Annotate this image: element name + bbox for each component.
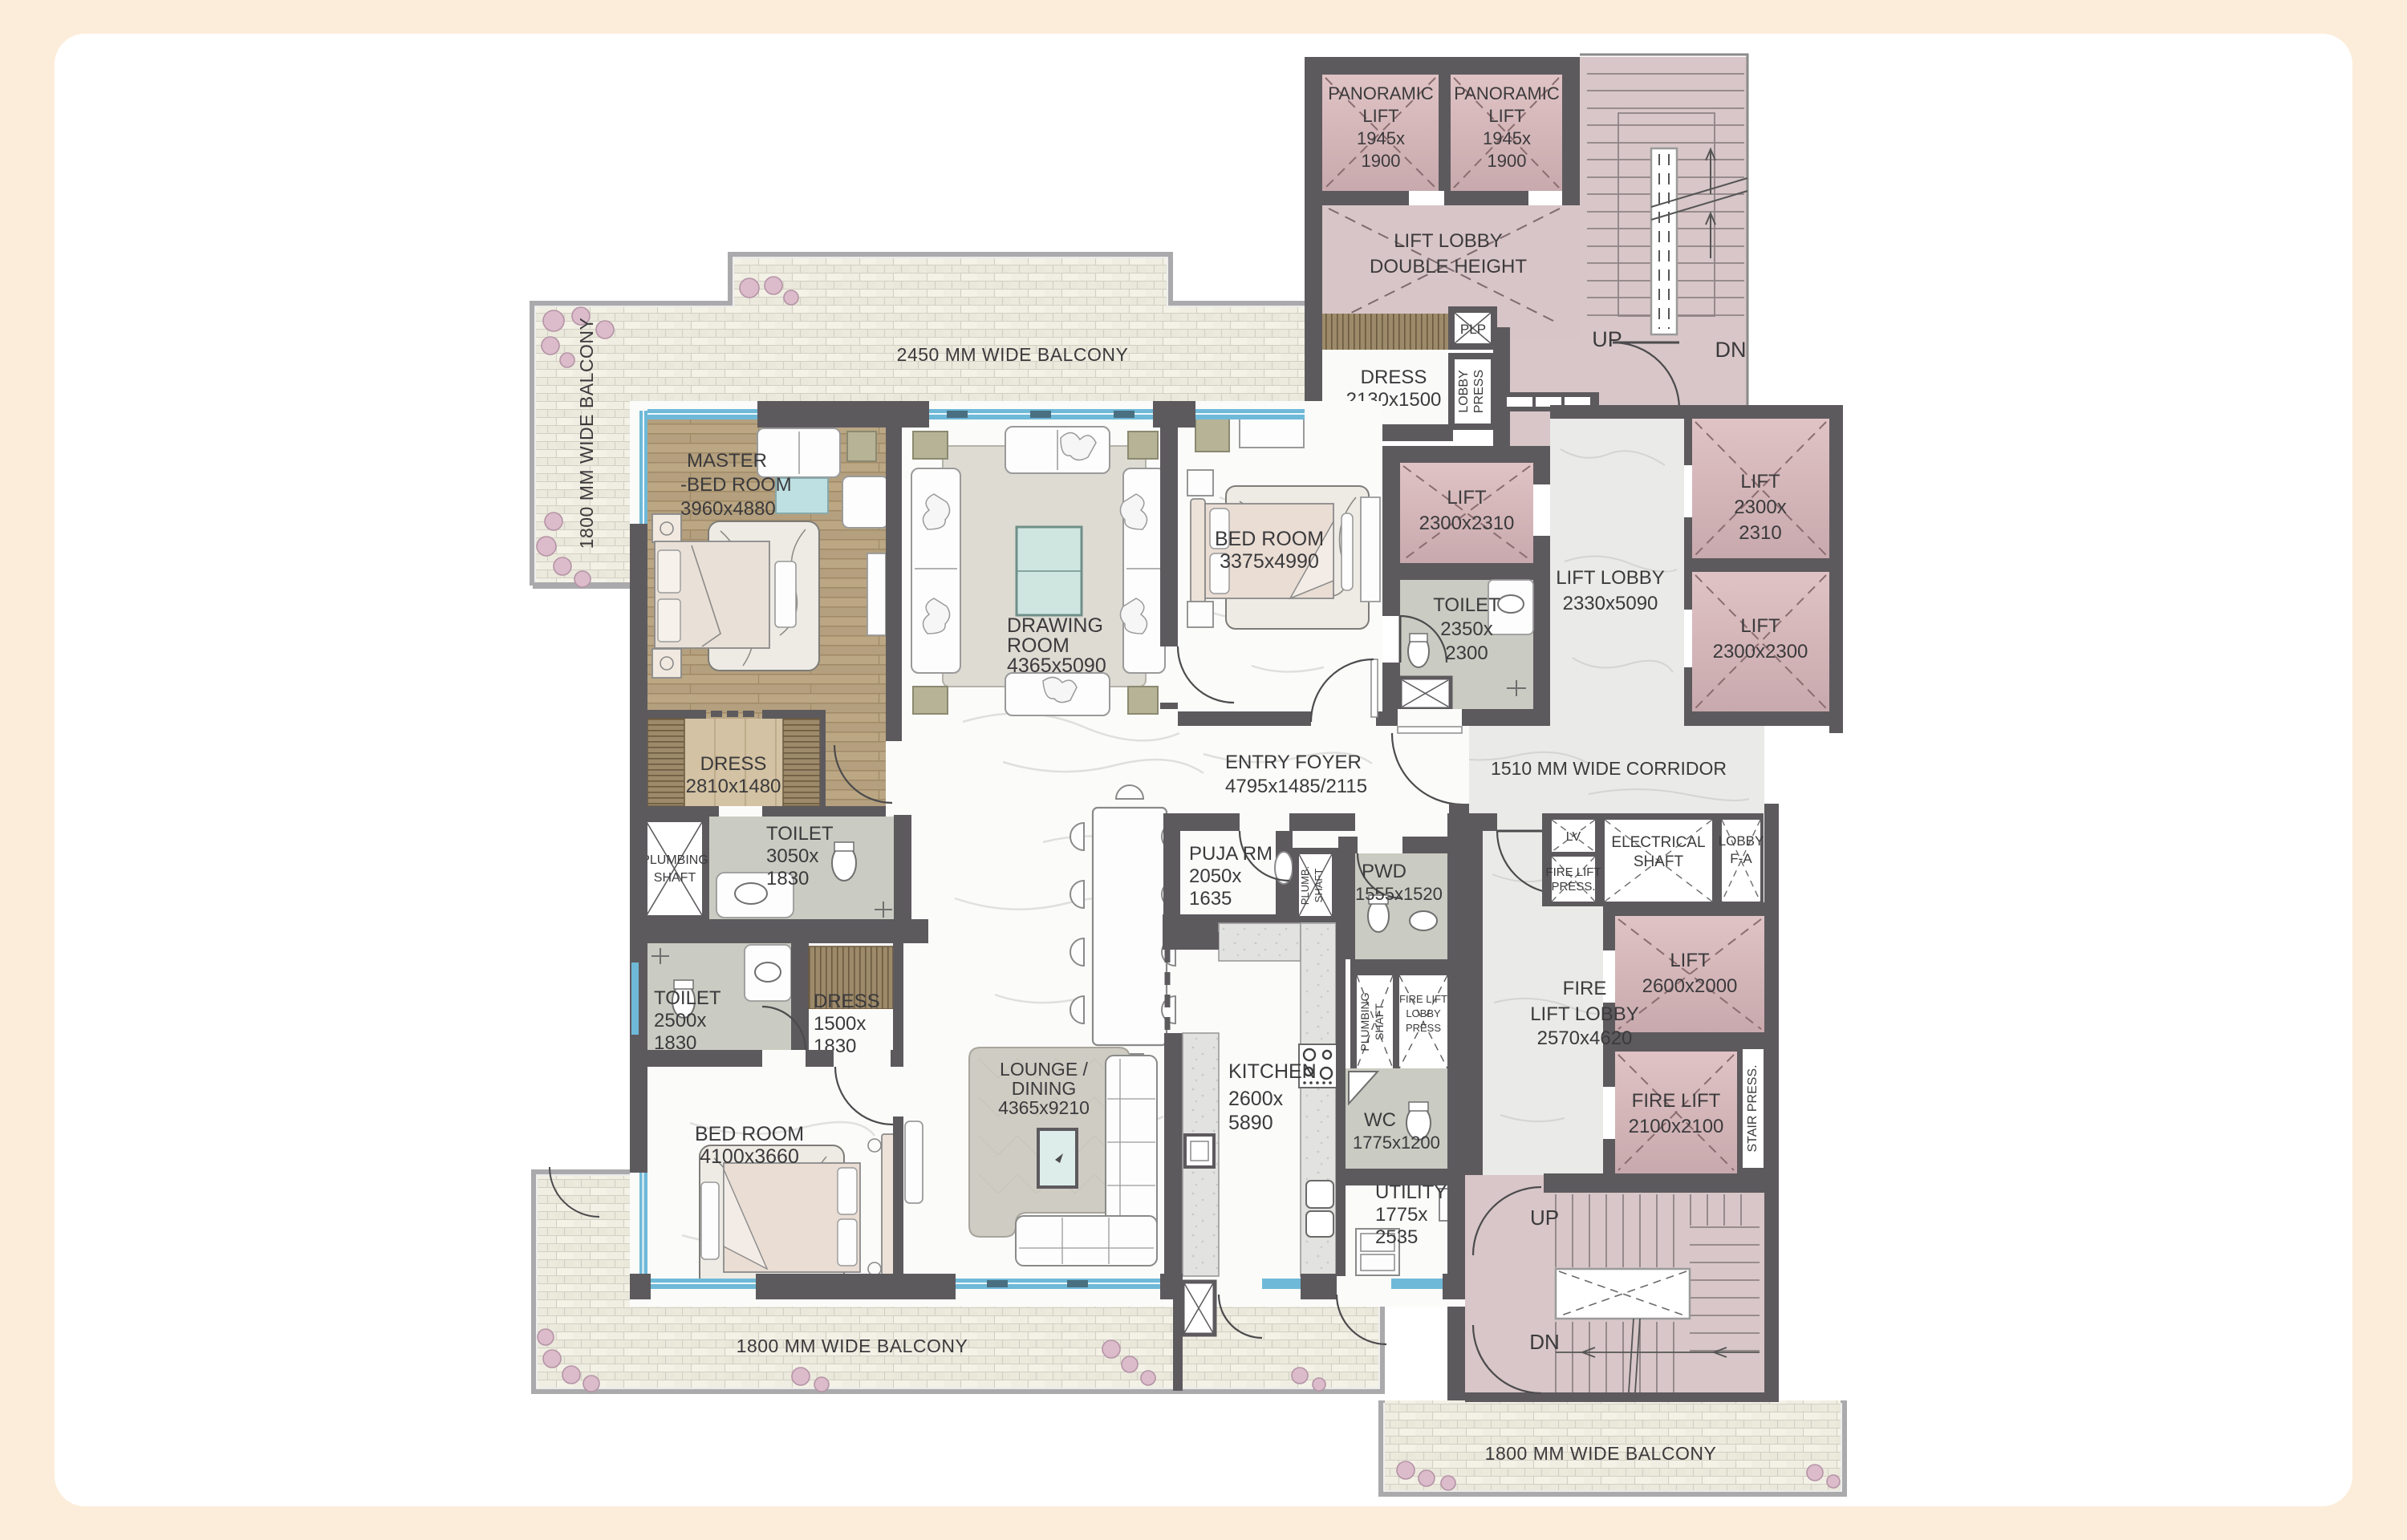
svg-text:4795x1485/2115: 4795x1485/2115 <box>1225 776 1367 797</box>
svg-text:LOUNGE /: LOUNGE / <box>1000 1059 1089 1080</box>
svg-text:PRESS: PRESS <box>1406 1022 1441 1034</box>
svg-text:2300x: 2300x <box>1734 496 1786 518</box>
svg-text:-BED ROOM: -BED ROOM <box>680 474 792 496</box>
svg-text:4100x3660: 4100x3660 <box>700 1145 799 1168</box>
svg-text:FIRE LIFT: FIRE LIFT <box>1545 865 1601 879</box>
svg-text:ROOM: ROOM <box>1007 634 1070 657</box>
svg-text:DRAWING: DRAWING <box>1007 614 1103 637</box>
svg-text:SHAFT: SHAFT <box>1373 1003 1386 1040</box>
svg-text:LOBBY: LOBBY <box>1457 370 1471 413</box>
svg-text:F-A: F-A <box>1730 851 1752 866</box>
svg-text:2310: 2310 <box>1739 522 1781 544</box>
svg-text:1900: 1900 <box>1488 151 1527 171</box>
svg-text:2100x2100: 2100x2100 <box>1629 1116 1724 1137</box>
svg-text:STAIR PRESS.: STAIR PRESS. <box>1746 1064 1760 1152</box>
svg-text:PRESS.: PRESS. <box>1551 880 1595 894</box>
svg-text:2300x2300: 2300x2300 <box>1713 641 1808 663</box>
svg-text:2600x: 2600x <box>1228 1088 1284 1110</box>
svg-text:4365x5090: 4365x5090 <box>1007 654 1106 677</box>
svg-text:LIFT: LIFT <box>1362 106 1398 126</box>
svg-text:DN: DN <box>1529 1330 1560 1354</box>
svg-text:2300: 2300 <box>1445 642 1488 664</box>
svg-text:DRESS: DRESS <box>1361 367 1427 388</box>
svg-text:LIFT: LIFT <box>1740 615 1780 637</box>
svg-text:PANORAMIC: PANORAMIC <box>1328 83 1434 103</box>
svg-text:LOBBY: LOBBY <box>1719 833 1764 849</box>
svg-text:TOILET: TOILET <box>766 823 834 845</box>
svg-text:SHAFT: SHAFT <box>1634 853 1684 870</box>
svg-text:2535: 2535 <box>1375 1226 1418 1248</box>
svg-text:1775x: 1775x <box>1375 1204 1427 1226</box>
svg-text:ELECTRICAL: ELECTRICAL <box>1611 834 1705 851</box>
svg-text:2810x1480: 2810x1480 <box>686 776 781 797</box>
svg-text:1635: 1635 <box>1189 888 1232 910</box>
svg-text:DINING: DINING <box>1012 1078 1077 1099</box>
svg-text:LIFT: LIFT <box>1447 487 1487 509</box>
svg-text:PRESS: PRESS <box>1472 370 1486 413</box>
svg-text:1945x: 1945x <box>1483 128 1531 148</box>
svg-text:WC: WC <box>1364 1109 1396 1131</box>
svg-text:ENTRY FOYER: ENTRY FOYER <box>1225 752 1362 773</box>
svg-text:UP: UP <box>1530 1206 1559 1230</box>
svg-text:LIFT: LIFT <box>1740 471 1780 492</box>
svg-text:PANORAMIC: PANORAMIC <box>1454 83 1560 103</box>
svg-text:3960x4880: 3960x4880 <box>680 498 776 520</box>
svg-text:PLUMBING: PLUMBING <box>1358 992 1371 1051</box>
svg-text:2450 MM WIDE BALCONY: 2450 MM WIDE BALCONY <box>897 344 1129 365</box>
svg-text:PLUMB.: PLUMB. <box>1299 866 1311 905</box>
svg-text:1900: 1900 <box>1362 151 1401 171</box>
svg-text:PWD: PWD <box>1362 861 1406 882</box>
svg-text:BED ROOM: BED ROOM <box>1215 528 1324 550</box>
svg-text:DRESS: DRESS <box>814 991 880 1012</box>
svg-text:1800 MM WIDE BALCONY: 1800 MM WIDE BALCONY <box>737 1335 968 1356</box>
svg-text:1800 MM WIDE BALCONY: 1800 MM WIDE BALCONY <box>576 318 597 549</box>
svg-text:PUJA RM: PUJA RM <box>1189 843 1273 865</box>
svg-text:DOUBLE HEIGHT: DOUBLE HEIGHT <box>1370 256 1527 278</box>
svg-text:LIFT LOBBY: LIFT LOBBY <box>1556 567 1665 589</box>
svg-text:3050x: 3050x <box>766 845 818 867</box>
svg-text:1800 MM WIDE BALCONY: 1800 MM WIDE BALCONY <box>1485 1443 1717 1464</box>
svg-text:LOBBY: LOBBY <box>1406 1007 1441 1019</box>
svg-text:PLUMBING: PLUMBING <box>641 853 708 867</box>
svg-text:SHAFT: SHAFT <box>1313 869 1325 903</box>
svg-text:5890: 5890 <box>1228 1112 1273 1134</box>
svg-text:TOILET: TOILET <box>654 987 721 1009</box>
svg-text:KITCHEN: KITCHEN <box>1228 1060 1317 1083</box>
svg-text:FIRE LIFT: FIRE LIFT <box>1399 993 1447 1005</box>
svg-text:PLP: PLP <box>1460 322 1486 337</box>
svg-text:UP: UP <box>1592 327 1622 351</box>
svg-text:2500x: 2500x <box>654 1010 706 1031</box>
svg-text:3375x4990: 3375x4990 <box>1220 550 1319 573</box>
svg-text:LIFT LOBBY: LIFT LOBBY <box>1394 230 1503 252</box>
svg-text:LIFT: LIFT <box>1488 106 1524 126</box>
svg-text:1775x1200: 1775x1200 <box>1353 1133 1440 1153</box>
svg-text:1510 MM WIDE CORRIDOR: 1510 MM WIDE CORRIDOR <box>1491 758 1727 779</box>
svg-text:2350x: 2350x <box>1440 618 1492 640</box>
svg-text:BED ROOM: BED ROOM <box>695 1123 804 1145</box>
svg-text:SHAFT: SHAFT <box>654 871 696 885</box>
svg-text:LV: LV <box>1566 830 1581 844</box>
svg-text:2570x4620: 2570x4620 <box>1537 1027 1633 1049</box>
svg-text:LIFT LOBBY: LIFT LOBBY <box>1530 1003 1639 1025</box>
svg-text:1555x1520: 1555x1520 <box>1355 884 1443 904</box>
svg-text:1830: 1830 <box>766 868 809 890</box>
svg-text:1500x: 1500x <box>814 1013 866 1035</box>
svg-text:MASTER: MASTER <box>687 450 767 472</box>
svg-text:TOILET: TOILET <box>1433 594 1500 616</box>
svg-text:UTILITY: UTILITY <box>1375 1181 1447 1203</box>
svg-text:2330x5090: 2330x5090 <box>1563 593 1658 614</box>
svg-text:FIRE LIFT: FIRE LIFT <box>1632 1090 1721 1112</box>
svg-text:FIRE: FIRE <box>1563 978 1607 999</box>
svg-text:DN: DN <box>1715 338 1747 362</box>
svg-text:LIFT: LIFT <box>1670 950 1710 971</box>
svg-text:2050x: 2050x <box>1189 865 1241 887</box>
svg-text:DRESS: DRESS <box>700 753 767 775</box>
svg-text:2300x2310: 2300x2310 <box>1419 513 1515 534</box>
svg-text:1945x: 1945x <box>1357 128 1405 148</box>
svg-text:4365x9210: 4365x9210 <box>998 1097 1090 1118</box>
svg-text:2600x2000: 2600x2000 <box>1642 975 1738 997</box>
